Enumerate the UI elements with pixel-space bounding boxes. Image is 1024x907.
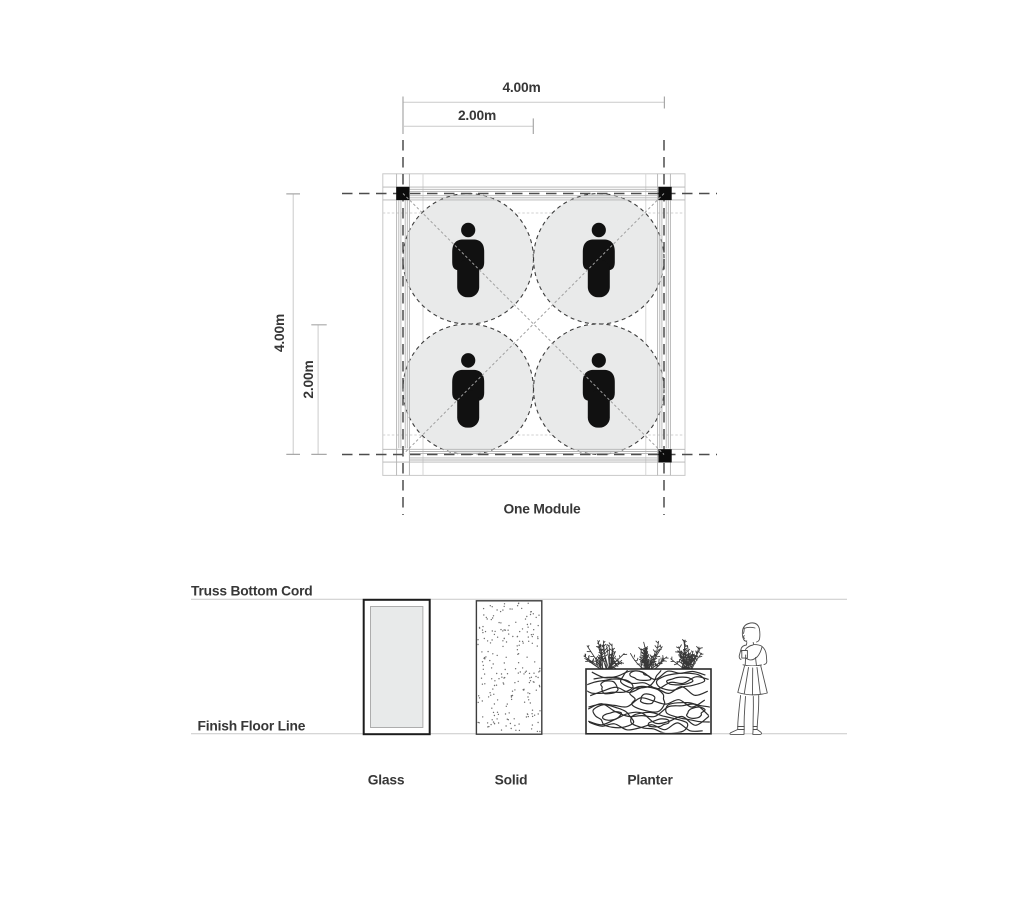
svg-text:4.00m: 4.00m (502, 80, 540, 95)
svg-text:One Module: One Module (504, 502, 581, 517)
svg-text:Glass: Glass (368, 773, 405, 788)
svg-text:Finish Floor Line: Finish Floor Line (198, 718, 306, 733)
svg-text:2.00m: 2.00m (458, 108, 496, 123)
svg-text:Truss Bottom Cord: Truss Bottom Cord (191, 584, 313, 599)
svg-text:4.00m: 4.00m (272, 314, 287, 352)
svg-text:Solid: Solid (495, 773, 528, 788)
svg-text:2.00m: 2.00m (301, 360, 316, 398)
svg-text:Planter: Planter (627, 773, 673, 788)
